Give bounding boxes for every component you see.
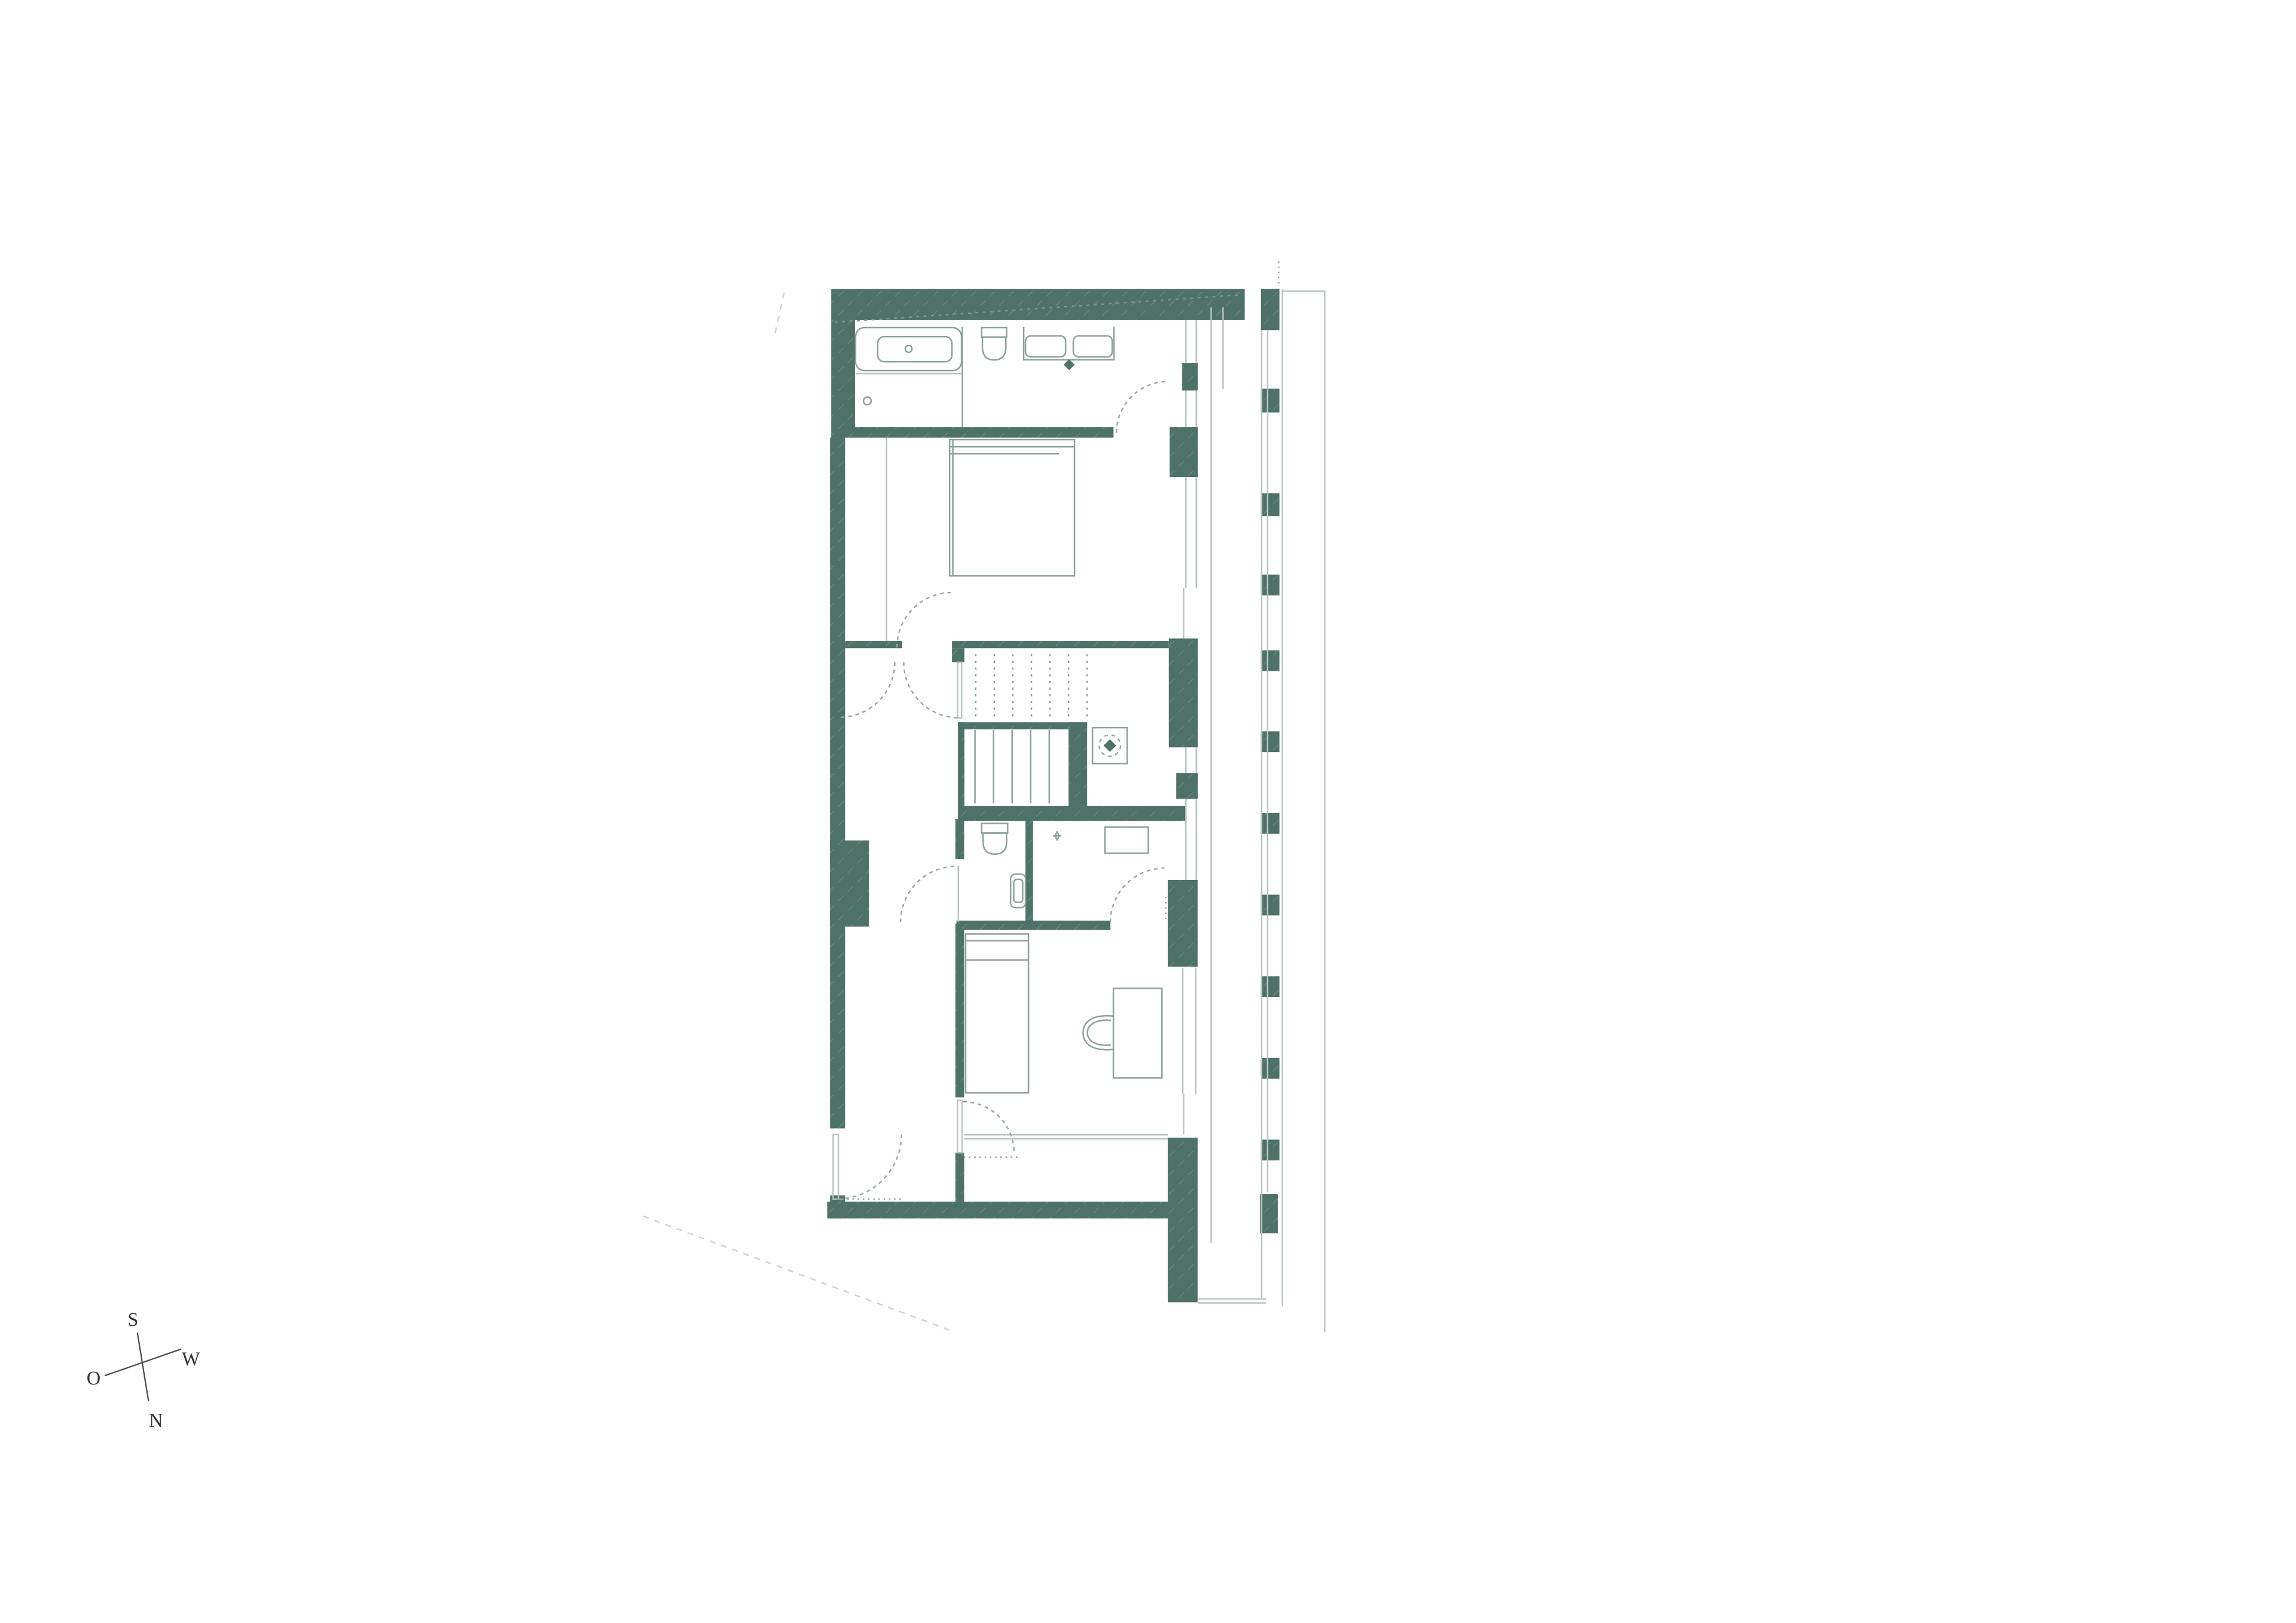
- facade-pier: [1261, 731, 1280, 752]
- bedroom2-door-leaf: [957, 1101, 962, 1153]
- corridor-door-leaf: [833, 1135, 838, 1199]
- east-wall-pier-1: [1182, 363, 1198, 390]
- compass-rose: S W O N: [87, 1309, 200, 1431]
- floor-plan-page: S W O N: [0, 0, 2296, 1623]
- facade-pier: [1261, 493, 1280, 516]
- compass-label-west: W: [182, 1348, 200, 1370]
- stair-south-wall: [958, 806, 1186, 821]
- faucet-icon: [1064, 359, 1074, 370]
- sink-left: [1025, 336, 1065, 357]
- west-wall-pier: [830, 840, 869, 927]
- facade-pier: [1261, 1058, 1280, 1079]
- east-wall-stair-block: [1169, 638, 1198, 747]
- facade-pier: [1261, 574, 1280, 595]
- bathtub-drain-icon: [905, 346, 912, 352]
- stair-lower-flight: [975, 730, 1049, 803]
- hall-north-wall-right: [952, 641, 1169, 648]
- west-wall-upper: [831, 320, 855, 438]
- bathtub: [856, 328, 961, 371]
- sideboard: [1105, 827, 1149, 854]
- hall-door-swing-2: [840, 662, 895, 717]
- wc-east-wall: [1025, 819, 1033, 925]
- facade-pier-bottom: [1260, 1194, 1278, 1233]
- east-wall-bottom-column: [1168, 1138, 1198, 1302]
- hall-door-stub: [952, 648, 964, 662]
- compass-ns-axis: [138, 1332, 149, 1401]
- bathroom: [856, 327, 1114, 427]
- bathroom-south-wall: [832, 427, 1113, 438]
- flue-core-icon: [1104, 739, 1116, 752]
- facade-pier-strip: [1198, 289, 1325, 1332]
- bed-single: [966, 934, 1028, 1093]
- facade-pier: [1261, 813, 1280, 834]
- stair-right-wall: [1068, 722, 1087, 807]
- hall-north-wall-left: [845, 641, 902, 648]
- east-wall-pier-2: [1176, 773, 1198, 799]
- compass-label-east: O: [87, 1367, 100, 1389]
- shower-drain-icon: [863, 397, 871, 405]
- hall2-south-wall: [957, 921, 1111, 930]
- bed-double: [949, 439, 1074, 576]
- facade-pier: [1261, 289, 1280, 330]
- bedroom-2: [964, 934, 1168, 1139]
- corridor-door-swing: [837, 1135, 902, 1199]
- compass-label-south: S: [127, 1309, 138, 1330]
- facade-pier: [1261, 1139, 1280, 1160]
- bathroom-door-swing: [1116, 381, 1168, 433]
- hall-door-swing: [903, 662, 959, 718]
- stair-upper-flight: [976, 654, 1087, 719]
- facade-pier: [1261, 976, 1280, 997]
- hall-door-leaf: [958, 662, 962, 718]
- wc-door-swing: [900, 866, 956, 922]
- wc-washbasin: [1010, 874, 1025, 907]
- wc-toilet: [982, 823, 1007, 854]
- west-wall-lower: [830, 438, 845, 1128]
- hall2-door-swing: [1110, 868, 1164, 922]
- east-wall-pier-3: [1168, 880, 1198, 967]
- bedroom-door-swing: [897, 592, 952, 647]
- wc-west-wall-lower: [955, 924, 964, 1098]
- flue: [1092, 728, 1127, 763]
- wc-west-wall-upper: [955, 819, 964, 859]
- double-vanity: [1024, 327, 1114, 370]
- bedroom2-door-swing: [963, 1102, 1014, 1153]
- facade-pier: [1261, 650, 1280, 671]
- compass-label-north: N: [149, 1410, 163, 1431]
- stair-mid-stringer: [958, 722, 1087, 729]
- middle-hall: [1053, 827, 1148, 854]
- floor-symbol-icon: [1053, 832, 1061, 840]
- doors: [833, 381, 1168, 1199]
- bedroom2-west-wall-lower: [955, 1153, 964, 1202]
- sink-right: [1073, 336, 1112, 357]
- bathroom-south-pier: [1170, 427, 1198, 477]
- bedroom: [887, 438, 1074, 641]
- bathtub-basin: [878, 337, 952, 362]
- desk: [1113, 988, 1162, 1078]
- stair-left-wall: [958, 722, 964, 807]
- facade-pier: [1261, 895, 1280, 916]
- wc: [982, 823, 1025, 907]
- south-wall: [827, 1202, 1168, 1218]
- floor-plan-drawing: S W O N: [0, 0, 2296, 1623]
- desk-chair: [1083, 1016, 1113, 1050]
- facade-pier: [1261, 389, 1280, 412]
- compass-ew-axis: [105, 1349, 181, 1376]
- north-wall: [831, 289, 1244, 320]
- toilet: [982, 328, 1007, 360]
